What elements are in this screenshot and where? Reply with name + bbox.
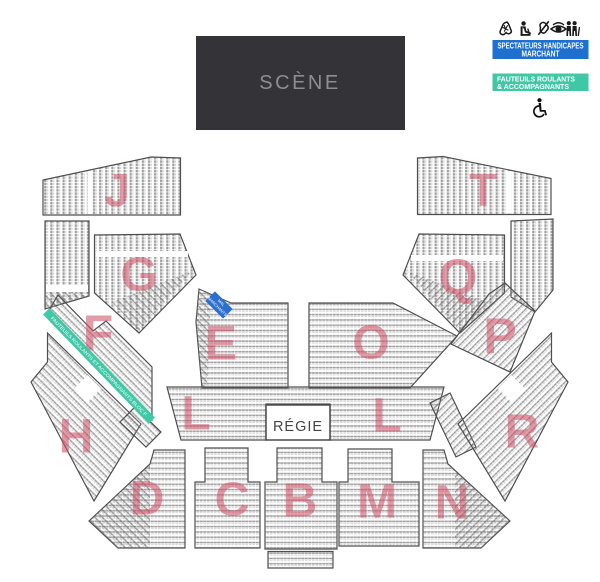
svg-text:P: P: [483, 308, 516, 364]
svg-text:R: R: [505, 406, 540, 459]
svg-text:MARCHANT: MARCHANT: [522, 50, 560, 59]
svg-text:J: J: [104, 164, 130, 216]
svg-text:C: C: [215, 474, 250, 527]
svg-text:B: B: [283, 475, 318, 528]
svg-text:D: D: [130, 473, 165, 526]
svg-text:G: G: [120, 249, 157, 302]
svg-text:H: H: [59, 411, 94, 464]
svg-text:& ACCOMPAGNANTS: & ACCOMPAGNANTS: [497, 82, 569, 91]
svg-text:L: L: [181, 388, 210, 441]
svg-text:Q: Q: [439, 249, 478, 305]
svg-text:RÉGIE: RÉGIE: [273, 418, 323, 435]
svg-text:SCÈNE: SCÈNE: [259, 71, 340, 94]
svg-text:L: L: [372, 390, 401, 443]
svg-text:E: E: [205, 318, 237, 371]
svg-text:T: T: [469, 164, 497, 216]
svg-text:N: N: [435, 477, 470, 530]
svg-text:O: O: [352, 317, 389, 370]
svg-text:M: M: [357, 476, 397, 529]
